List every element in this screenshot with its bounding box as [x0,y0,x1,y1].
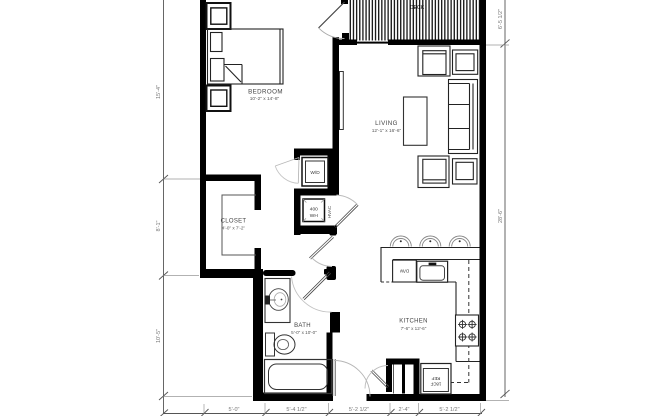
svg-text:BATH: BATH [294,323,311,329]
svg-text:5'-4 1/2": 5'-4 1/2" [286,407,306,413]
svg-text:5'-2 1/2": 5'-2 1/2" [439,407,459,413]
svg-text:BEDROOM: BEDROOM [248,89,283,96]
svg-text:10'-2" x 14'-8": 10'-2" x 14'-8" [250,96,280,102]
svg-text:DECK: DECK [410,5,425,11]
svg-text:CLOSET: CLOSET [221,219,247,225]
svg-text:28'-6": 28'-6" [498,209,504,223]
svg-text:15'-4": 15'-4" [156,85,162,99]
svg-text:10'-5": 10'-5" [156,329,162,343]
svg-text:8'-1": 8'-1" [156,220,162,231]
svg-text:7'-6" x 12'-6": 7'-6" x 12'-6" [401,326,427,331]
svg-text:5'-0": 5'-0" [229,407,240,413]
svg-text:WH: WH [310,213,319,219]
svg-text:12'-1" x 16'-6": 12'-1" x 16'-6" [372,128,402,134]
svg-text:18CF: 18CF [430,382,441,387]
svg-text:2'-4": 2'-4" [399,407,410,413]
svg-text:HVAC: HVAC [327,205,332,218]
svg-text:5'-0" x 10'-0": 5'-0" x 10'-0" [291,330,317,335]
svg-text:D/W: D/W [399,269,409,274]
svg-text:6'-5 1/2": 6'-5 1/2" [498,9,504,29]
svg-text:400: 400 [310,207,318,213]
svg-text:W/D: W/D [310,170,320,176]
svg-text:LIVING: LIVING [375,120,398,127]
svg-text:REF: REF [431,376,440,381]
svg-text:4'-0" x 7'-2": 4'-0" x 7'-2" [222,226,246,231]
svg-text:KITCHEN: KITCHEN [399,319,427,325]
svg-text:5'-2 1/2": 5'-2 1/2" [349,407,369,413]
